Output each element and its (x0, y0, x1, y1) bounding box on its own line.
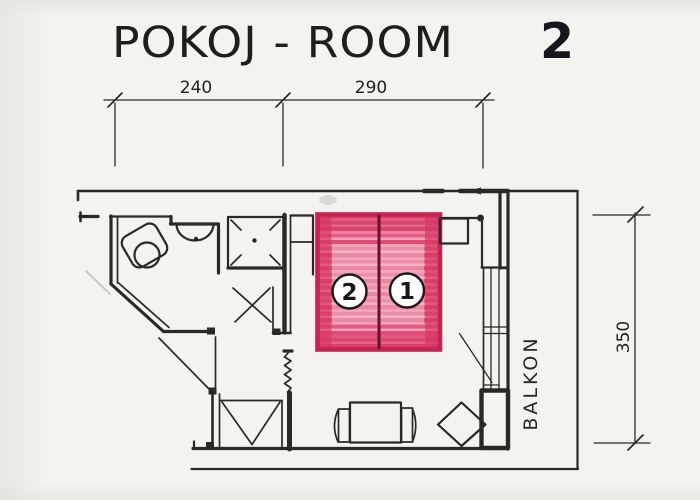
window-pier-top (482, 192, 508, 268)
chair-right (402, 408, 416, 442)
balcony-door-frame (460, 268, 509, 392)
partition-wall-middle (285, 215, 291, 333)
bed-2-number: 2 (341, 280, 357, 306)
scanned-floorplan-sheet: POKOJ - ROOM 2 240 290 350 (0, 0, 700, 500)
wardrobe-fixture (220, 401, 282, 448)
double-bed: 2 1 (318, 215, 441, 350)
dim-label-350: 350 (614, 321, 634, 353)
dim-label-240: 240 (180, 78, 212, 98)
dim-label-290: 290 (355, 78, 387, 98)
door-jamb (206, 442, 214, 449)
toilet-fixture (119, 221, 170, 271)
bathroom-wall-left (111, 216, 118, 284)
scan-pencil-stray (86, 271, 110, 294)
bed-1-badge: 1 (390, 274, 424, 308)
nightstand-left (291, 216, 314, 275)
zigzag-symbol (284, 351, 292, 392)
scan-smudge (319, 195, 337, 205)
wall-arrow-mark (469, 188, 481, 195)
door-jamb (273, 329, 281, 336)
balcony-door-swing (460, 334, 493, 383)
balcony-label: BALKON (520, 335, 542, 430)
wall-stub-entry (213, 394, 220, 448)
nightstand-right (440, 219, 468, 244)
sink-fixture (171, 224, 219, 273)
chair-diamond (438, 403, 486, 447)
window-pier-bottom (482, 391, 509, 449)
entry-door-swing (159, 338, 209, 389)
dimension-top: 240 290 (104, 78, 494, 168)
table-fixture (350, 403, 401, 443)
entry-door (159, 337, 217, 395)
door-jamb (207, 328, 215, 335)
bathroom-wall-angled (111, 283, 169, 332)
bed-2-badge: 2 (333, 275, 367, 309)
floorplan-drawing: POKOJ - ROOM 2 240 290 350 (0, 0, 700, 500)
dimension-right: 350 (593, 207, 650, 450)
bathroom-wall-bottom (164, 287, 291, 335)
shower-door-cross (233, 288, 271, 322)
shower-fixture (228, 217, 284, 268)
bed-1-number: 1 (399, 279, 415, 305)
room-number: 2 (540, 13, 574, 70)
plan-title: POKOJ - ROOM (112, 18, 454, 68)
chair-left (335, 409, 350, 442)
